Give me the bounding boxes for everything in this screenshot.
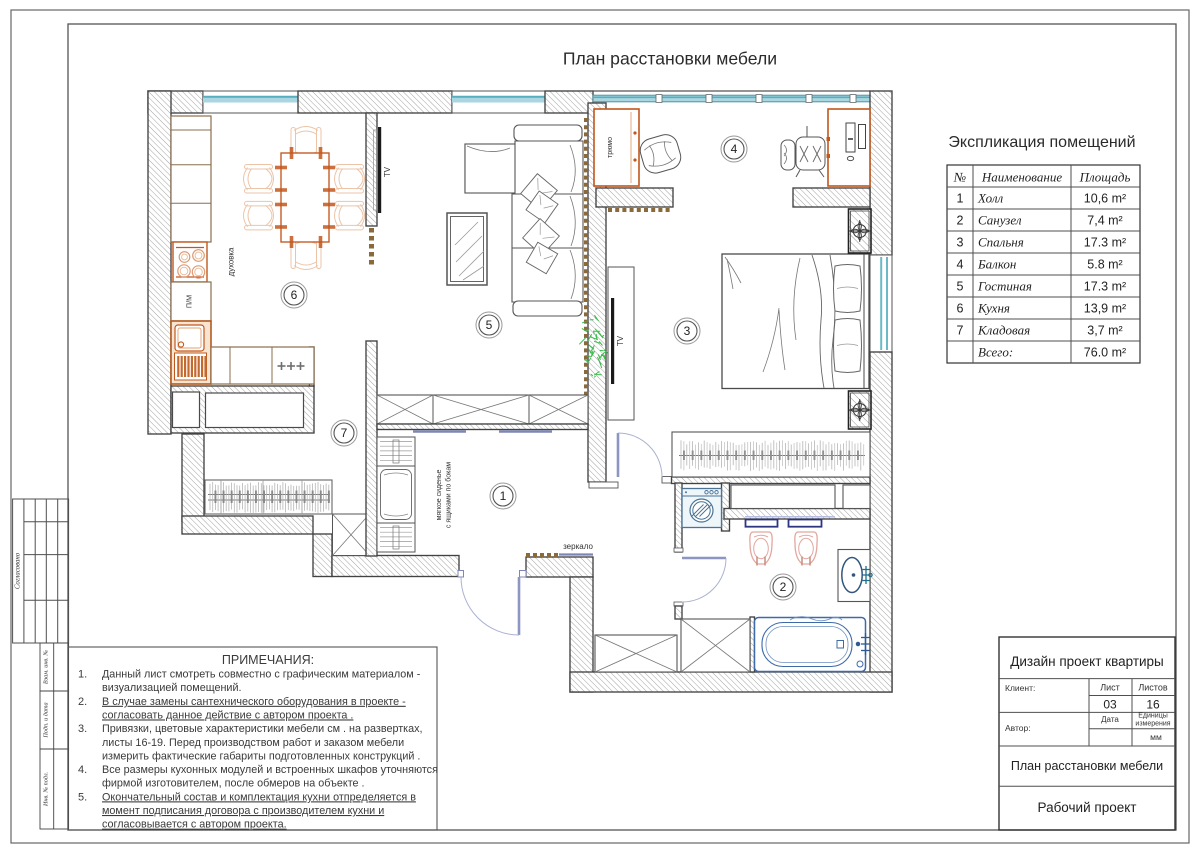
svg-text:измерения: измерения — [1135, 721, 1170, 728]
svg-text:Единицы: Единицы — [1138, 713, 1167, 720]
svg-text:ТV: ТV — [616, 335, 625, 346]
svg-text:6: 6 — [291, 288, 298, 302]
svg-text:Балкон: Балкон — [977, 257, 1016, 272]
svg-text:измерить фактические габариты: измерить фактические габариты подготовле… — [102, 750, 420, 762]
svg-text:5.: 5. — [78, 791, 87, 803]
svg-text:Привязки, цветовые характерист: Привязки, цветовые характеристики мебели… — [102, 723, 423, 735]
svg-text:4.: 4. — [78, 764, 87, 776]
svg-text:7: 7 — [957, 324, 964, 338]
svg-text:Санузел: Санузел — [978, 213, 1022, 228]
svg-text:1.: 1. — [78, 669, 87, 681]
svg-text:Гостиная: Гостиная — [977, 279, 1032, 294]
svg-text:Автор:: Автор: — [1005, 723, 1031, 733]
svg-text:Листов: Листов — [1138, 683, 1167, 693]
svg-text:План расстановки мебели: План расстановки мебели — [563, 49, 777, 69]
svg-text:Экспликация помещений: Экспликация помещений — [948, 134, 1135, 151]
svg-text:Дизайн проект квартиры: Дизайн проект квартиры — [1010, 654, 1164, 669]
svg-text:Согласовано: Согласовано — [15, 552, 22, 589]
svg-text:13,9 m²: 13,9 m² — [1084, 302, 1126, 316]
svg-text:момент подписания договора с п: момент подписания договора с производите… — [102, 805, 384, 817]
svg-text:Рабочий проект: Рабочий проект — [1038, 800, 1137, 815]
svg-text:6: 6 — [957, 302, 964, 316]
svg-text:мягкое сиденье: мягкое сиденье — [436, 469, 443, 520]
svg-text:Холл: Холл — [977, 191, 1004, 206]
svg-text:2: 2 — [957, 214, 964, 228]
svg-text:согласовывается с автором прое: согласовывается с автором проекта. — [102, 819, 287, 831]
svg-text:фирмой изготовителем, после об: фирмой изготовителем, после обмеров на о… — [102, 778, 365, 790]
svg-text:с ящиками по бокам: с ящиками по бокам — [445, 462, 453, 528]
svg-text:2.: 2. — [78, 696, 87, 708]
svg-text:3,7 m²: 3,7 m² — [1087, 324, 1122, 338]
svg-text:7,4 m²: 7,4 m² — [1087, 214, 1122, 228]
svg-text:03: 03 — [1103, 698, 1117, 712]
svg-text:Кладовая: Кладовая — [977, 323, 1030, 338]
svg-text:5: 5 — [486, 318, 493, 332]
svg-text:Спальня: Спальня — [978, 235, 1024, 250]
svg-text:10,6 m²: 10,6 m² — [1084, 192, 1126, 206]
svg-text:Кухня: Кухня — [977, 301, 1010, 316]
svg-text:ТV: ТV — [383, 166, 392, 177]
svg-text:№: № — [953, 170, 966, 185]
svg-text:3.: 3. — [78, 723, 87, 735]
svg-text:Лист: Лист — [1100, 683, 1120, 693]
svg-text:План расстановки мебели: План расстановки мебели — [1011, 759, 1163, 773]
svg-text:1: 1 — [500, 489, 507, 503]
svg-text:мм: мм — [1150, 732, 1162, 742]
svg-text:4: 4 — [731, 142, 738, 156]
svg-text:визуализацией помещений.: визуализацией помещений. — [102, 682, 241, 694]
svg-text:3: 3 — [957, 236, 964, 250]
svg-text:5.8 m²: 5.8 m² — [1087, 258, 1122, 272]
svg-text:4: 4 — [957, 258, 964, 272]
svg-text:2: 2 — [780, 580, 787, 594]
svg-text:Дата: Дата — [1101, 715, 1119, 724]
svg-text:1: 1 — [957, 192, 964, 206]
svg-text:Всего:: Всего: — [978, 345, 1013, 360]
svg-text:Наименование: Наименование — [981, 170, 1062, 185]
svg-text:17.3 m²: 17.3 m² — [1084, 280, 1126, 294]
svg-text:Взам. инв. №: Взам. инв. № — [43, 650, 50, 684]
svg-text:Данный лист смотреть совместно: Данный лист смотреть совместно с графиче… — [102, 669, 421, 681]
svg-text:В случае замены сантехническог: В случае замены сантехнического оборудов… — [102, 696, 406, 708]
svg-text:Окончательный состав и комплек: Окончательный состав и комплектация кухн… — [102, 791, 416, 803]
svg-text:17.3 m²: 17.3 m² — [1084, 236, 1126, 250]
svg-text:Площадь: Площадь — [1079, 170, 1131, 185]
svg-text:зеркало: зеркало — [563, 542, 593, 551]
svg-text:П/М: П/М — [185, 295, 194, 308]
svg-text:трюмо: трюмо — [607, 137, 614, 158]
svg-text:7: 7 — [341, 426, 348, 440]
svg-text:Инв. № подл.: Инв. № подл. — [43, 772, 50, 807]
svg-text:согласовать данное действие с: согласовать данное действие с автором пр… — [102, 709, 353, 721]
svg-text:5: 5 — [957, 280, 964, 294]
svg-text:ПРИМЕЧАНИЯ:: ПРИМЕЧАНИЯ: — [222, 653, 314, 667]
svg-text:16: 16 — [1146, 698, 1160, 712]
svg-text:листы 16-19. Перед производств: листы 16-19. Перед производством работ и… — [102, 737, 404, 749]
svg-text:76.0 m²: 76.0 m² — [1084, 346, 1126, 360]
svg-text:Подп. и дата: Подп. и дата — [43, 702, 50, 738]
svg-text:Клиент:: Клиент: — [1005, 683, 1035, 693]
svg-text:Все размеры кухонных модулей и: Все размеры кухонных модулей и встроенны… — [102, 764, 438, 776]
svg-text:3: 3 — [684, 324, 691, 338]
svg-text:духовка: духовка — [227, 247, 236, 276]
